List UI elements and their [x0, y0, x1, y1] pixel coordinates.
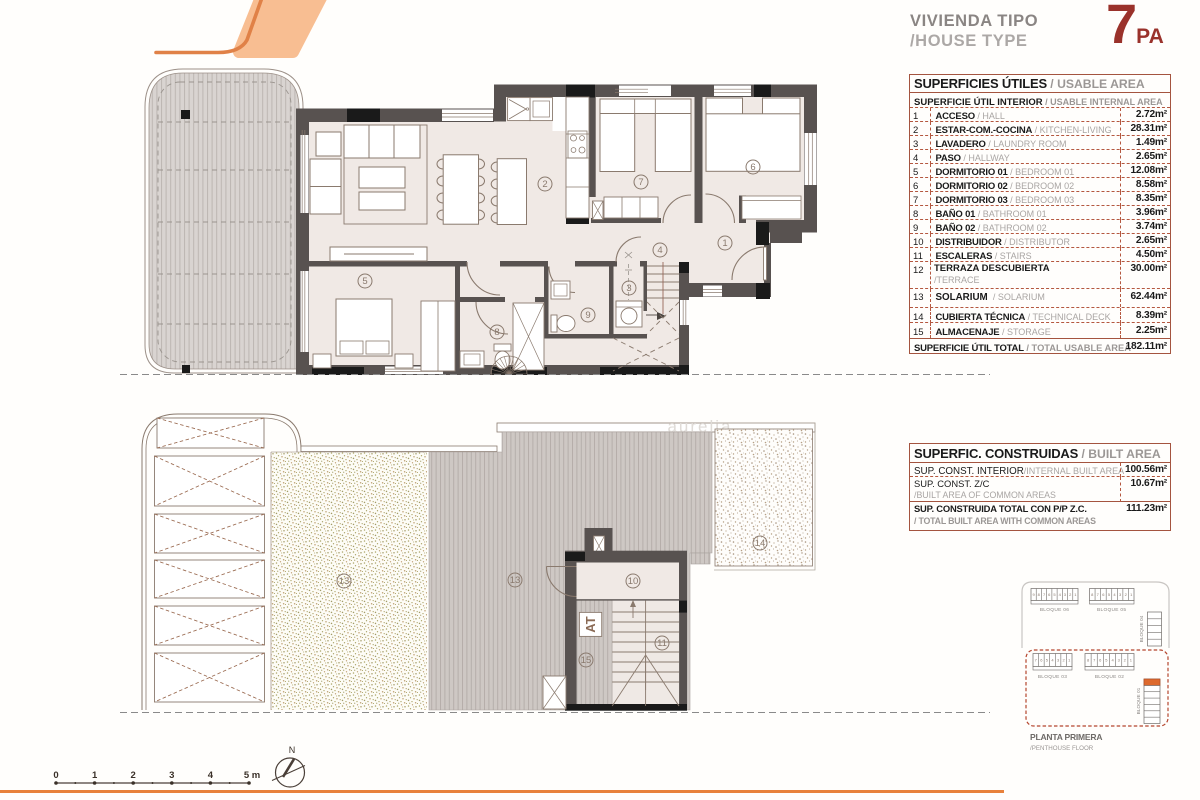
svg-text:2: 2 [131, 770, 136, 781]
svg-text:4: 4 [208, 770, 214, 781]
svg-text:4: 4 [657, 245, 662, 256]
svg-text:AT: AT [583, 616, 598, 632]
svg-text:7: 7 [638, 177, 643, 188]
svg-text:5 m: 5 m [244, 770, 260, 781]
svg-text:1: 1 [92, 770, 98, 781]
svg-text:13: 13 [339, 576, 350, 587]
svg-text:3: 3 [169, 770, 174, 781]
svg-text:15: 15 [581, 655, 592, 666]
svg-text:8: 8 [494, 327, 499, 338]
svg-text:2: 2 [542, 179, 547, 190]
svg-text:14: 14 [755, 538, 766, 549]
svg-text:3: 3 [626, 283, 631, 294]
svg-text:0: 0 [53, 770, 58, 781]
svg-text:BLOQUE 02: BLOQUE 02 [1095, 674, 1124, 680]
svg-text:N: N [289, 745, 296, 755]
svg-text:5: 5 [362, 276, 367, 287]
svg-text:6: 6 [750, 162, 755, 173]
svg-text:10: 10 [628, 576, 639, 587]
svg-text:BLOQUE 01: BLOQUE 01 [1136, 687, 1142, 714]
svg-text:/PENTHOUSE FLOOR: /PENTHOUSE FLOOR [1030, 745, 1094, 752]
svg-text:1: 1 [722, 238, 727, 249]
svg-text:PLANTA PRIMERA: PLANTA PRIMERA [1030, 732, 1102, 742]
svg-text:11: 11 [657, 638, 667, 649]
svg-text:9: 9 [585, 310, 590, 321]
svg-text:BLOQUE 03: BLOQUE 03 [1038, 674, 1067, 680]
svg-text:13: 13 [510, 575, 521, 586]
svg-text:BLOQUE 06: BLOQUE 06 [1040, 607, 1069, 613]
svg-text:BLOQUE 05: BLOQUE 05 [1097, 607, 1126, 613]
svg-text:BLOQUE 04: BLOQUE 04 [1139, 615, 1145, 642]
